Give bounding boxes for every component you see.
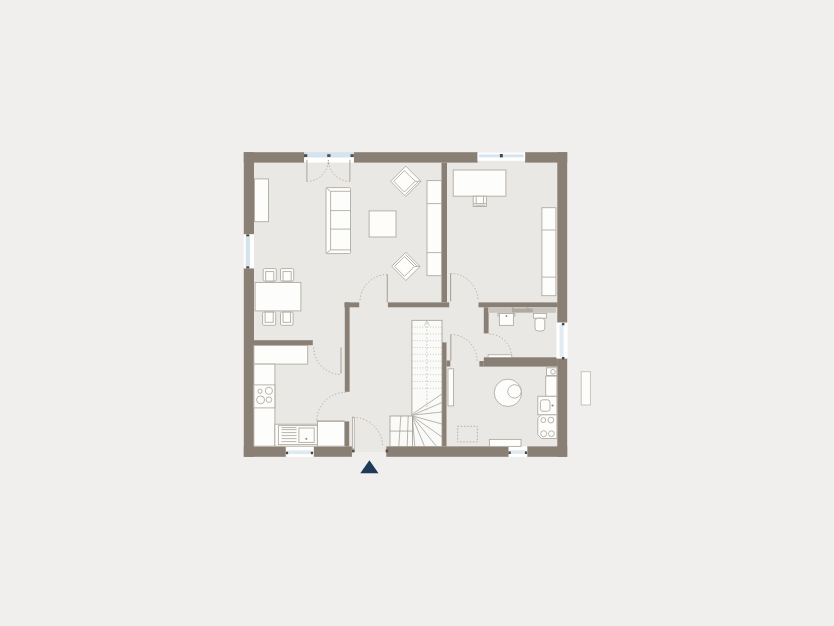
svg-text:bauseits: bauseits [512, 307, 533, 313]
